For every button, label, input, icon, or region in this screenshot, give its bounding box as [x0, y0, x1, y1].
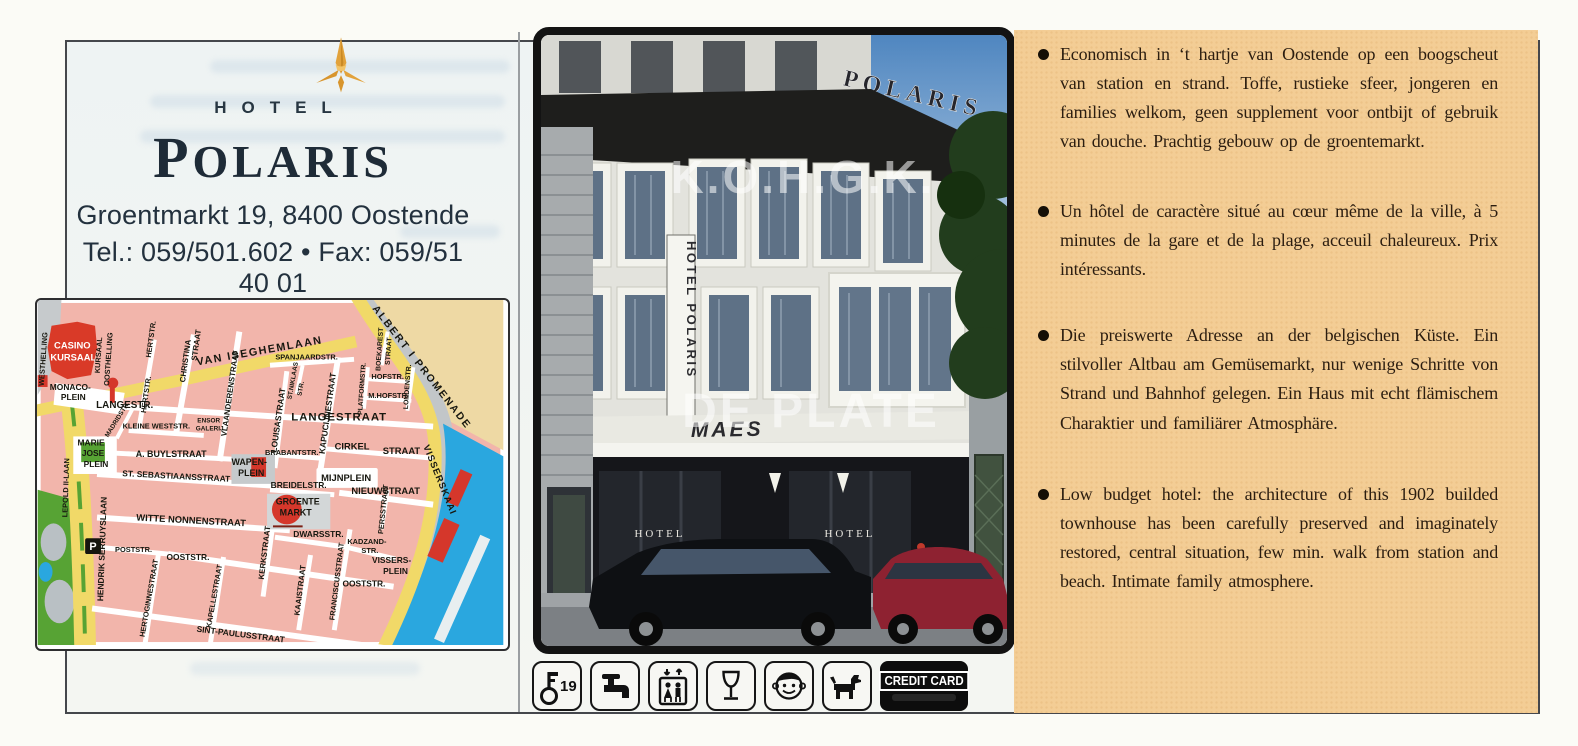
map-street-label: BREIDELSTR.: [271, 480, 327, 490]
map-street-label: CASINO: [54, 339, 90, 350]
hotel-phone-fax: Tel.: 059/501.602 • Fax: 059/51 40 01: [67, 237, 479, 299]
bullet-text-german: Die preiswerte Adresse an der belgischen…: [1060, 325, 1498, 432]
faucet-icon: [590, 661, 640, 711]
credit-card-icon: CREDIT CARD: [880, 661, 968, 711]
map-street-label: OOSTSTR.: [167, 552, 210, 562]
map-street-label: STRAAT: [383, 445, 421, 456]
bullet-dot: [1038, 206, 1049, 217]
bullet-item-french: Un hôtel de caractère situé au cœur même…: [1036, 197, 1498, 284]
map-street-label: JOSE: [82, 448, 105, 458]
map-street-label: VISSERS-: [372, 555, 411, 565]
map-street-label: MIJNPLEIN: [321, 472, 371, 483]
children-welcome-icon: [764, 661, 814, 711]
map-street-label: PLEIN: [238, 468, 264, 478]
room-key-icon: 19: [532, 661, 582, 711]
credit-card-stripe: [892, 694, 956, 701]
map-street-label: HOFSTR.: [371, 372, 404, 381]
watermark-line1: K.O.H.G.K.: [670, 151, 935, 203]
map-street-label: POSTSTR.: [115, 545, 152, 554]
bullet-text-dutch: Economisch in ‘t hartje van Oostende op …: [1060, 44, 1498, 151]
bullet-dot: [1038, 330, 1049, 341]
map-street-label: KADZAND-: [347, 537, 387, 546]
column-divider: [518, 32, 520, 712]
hotel-facade-art: POLARIS: [541, 35, 1007, 646]
city-map: CASINOKURSAALWESTHELLINGKURSAALOOSTHELLI…: [35, 298, 510, 651]
map-street-label: MARIE: [78, 437, 105, 447]
elevator-icon: [648, 661, 698, 711]
map-street-label: OOSTSTR.: [342, 579, 385, 589]
hotel-word: HOTEL: [67, 98, 479, 118]
description-bullets: Economisch in ‘t hartje van Oostende op …: [1014, 30, 1538, 596]
hotel-address: Groentmarkt 19, 8400 Oostende: [67, 200, 479, 231]
map-street-label: WAPEN-: [231, 457, 267, 467]
hotel-polaris-star-logo: [310, 34, 372, 98]
hotel-name: POLARIS: [67, 124, 479, 191]
map-street-label: STR.: [361, 546, 378, 555]
watermark-line2: DE PLATE: [682, 385, 940, 438]
brochure-page: HOTEL POLARIS Groentmarkt 19, 8400 Ooste…: [0, 0, 1578, 746]
pets-allowed-icon: [822, 661, 872, 711]
bullet-dot: [1038, 49, 1049, 60]
map-street-label: DWARSSTR.: [293, 529, 343, 539]
map-street-label: SPANJAARDSTR.: [275, 352, 337, 361]
map-street-label: KURSAAL: [50, 351, 96, 362]
map-street-label: PLEIN: [84, 459, 109, 469]
map-street-label: GROENTE: [276, 497, 320, 507]
bullet-text-french: Un hôtel de caractère situé au cœur même…: [1060, 201, 1498, 279]
vertical-hotel-sign-text: HOTEL POLARIS: [684, 241, 699, 379]
bullet-item-english: Low budget hotel: the architecture of th…: [1036, 480, 1498, 597]
description-panel: Economisch in ‘t hartje van Oostende op …: [1014, 30, 1538, 713]
map-street-label: A. BUYLSTRAAT: [136, 449, 207, 459]
map-street-label: ENSOR: [197, 418, 220, 425]
map-street-label: KLEINE WESTSTR.: [123, 422, 190, 431]
map-street-label: MARKT: [280, 508, 313, 518]
bullet-item-dutch: Economisch in ‘t hartje van Oostende op …: [1036, 40, 1498, 157]
bullet-text-english: Low budget hotel: the architecture of th…: [1060, 484, 1498, 591]
left-pilaster: [541, 127, 593, 613]
wine-glass-icon: [706, 661, 756, 711]
map-street-label: P: [89, 541, 96, 553]
hotel-photo: POLARIS: [533, 27, 1015, 654]
map-street-label: PLEIN: [61, 392, 86, 402]
storefront-hotel-text-right: HOTEL: [824, 528, 875, 540]
room-count: 19: [560, 678, 577, 695]
bullet-item-german: Die preiswerte Adresse an der belgischen…: [1036, 321, 1498, 438]
credit-card-label: CREDIT CARD: [879, 671, 969, 691]
bleed-smudge: [190, 662, 420, 675]
map-street-label: BRABANTSTR.: [265, 448, 319, 457]
map-street-label: LANGESTRAAT: [291, 412, 387, 424]
amenities-row: 19: [532, 660, 968, 712]
bullet-dot: [1038, 489, 1049, 500]
map-street-label: PLEIN: [383, 566, 408, 576]
storefront-hotel-text-left: HOTEL: [634, 528, 685, 540]
map-street-label: CIRKEL: [335, 440, 370, 451]
city-map-art: CASINOKURSAALWESTHELLINGKURSAALOOSTHELLI…: [37, 300, 504, 645]
map-street-label: MONACO-: [50, 382, 91, 392]
map-street-label: GALERIJ: [196, 425, 224, 432]
